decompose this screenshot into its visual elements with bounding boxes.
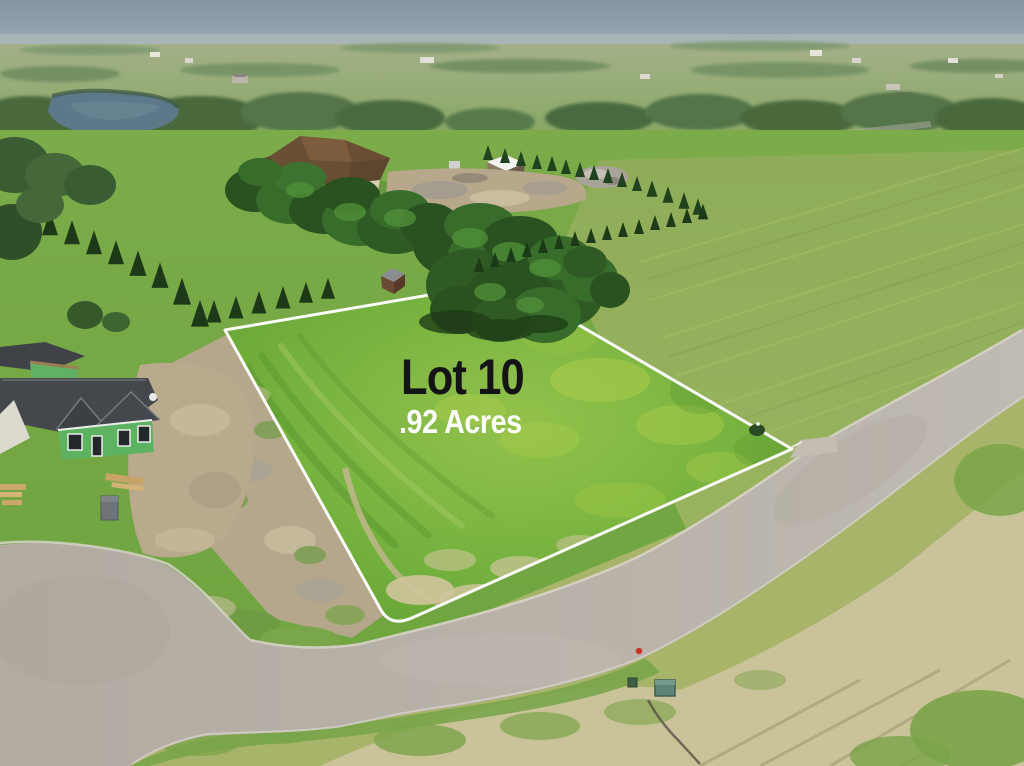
lot-number-label: Lot 10 bbox=[401, 352, 524, 402]
white-barrel bbox=[149, 393, 157, 401]
porta-potty bbox=[101, 496, 118, 520]
acreage-label: .92 Acres bbox=[399, 405, 522, 438]
aerial-photo: Lot 10 .92 Acres bbox=[0, 0, 1024, 766]
hydrant-marker bbox=[636, 648, 642, 654]
utility-box-small bbox=[628, 678, 637, 687]
utility-box-transformer bbox=[655, 680, 675, 696]
